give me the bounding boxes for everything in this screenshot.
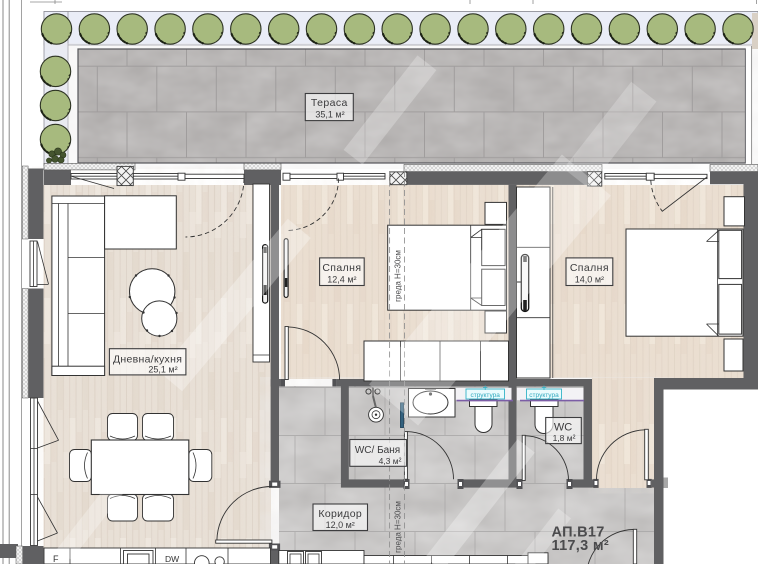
svg-text:греда Н=30см: греда Н=30см — [394, 250, 403, 302]
svg-text:14,0 м²: 14,0 м² — [575, 275, 604, 285]
svg-text:греда Н=30см: греда Н=30см — [394, 501, 403, 553]
svg-text:структура: структура — [470, 392, 500, 399]
svg-text:1,8 м²: 1,8 м² — [553, 433, 576, 443]
svg-text:12,4 м²: 12,4 м² — [327, 275, 356, 285]
svg-text:Спалня: Спалня — [322, 262, 361, 274]
svg-text:Коридор: Коридор — [318, 508, 362, 520]
svg-text:25,1 м²: 25,1 м² — [148, 364, 177, 374]
svg-text:структура: структура — [529, 392, 559, 399]
svg-text:WC/ Баня: WC/ Баня — [355, 445, 400, 456]
svg-text:12,0 м²: 12,0 м² — [326, 520, 355, 530]
svg-text:F: F — [53, 554, 59, 564]
svg-text:4,3 м²: 4,3 м² — [379, 456, 402, 466]
svg-text:117,3 м²: 117,3 м² — [552, 538, 609, 554]
svg-text:Спалня: Спалня — [570, 262, 609, 274]
svg-text:DW: DW — [165, 554, 179, 564]
svg-text:WC: WC — [554, 422, 572, 434]
svg-text:Тераса: Тераса — [311, 97, 348, 109]
svg-text:35,1 м²: 35,1 м² — [315, 110, 344, 120]
